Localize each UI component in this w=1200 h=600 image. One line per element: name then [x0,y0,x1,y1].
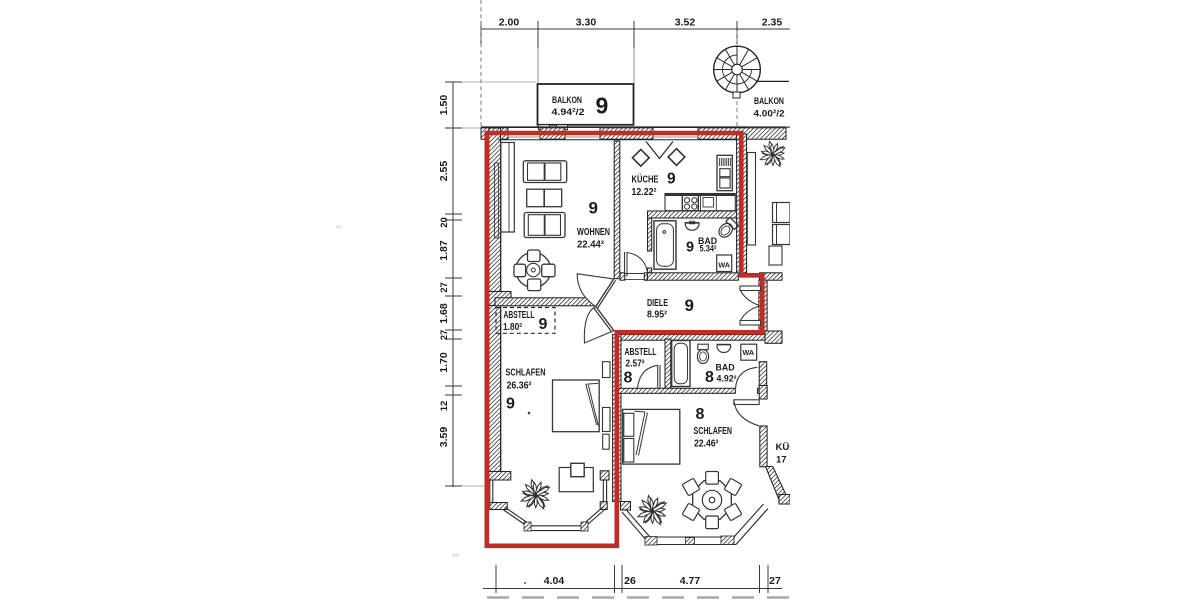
svg-text:20: 20 [439,217,450,228]
svg-text:9: 9 [506,396,515,413]
svg-text:ABSTELL: ABSTELL [625,347,657,358]
svg-text:1.68: 1.68 [438,303,450,324]
svg-text:27: 27 [439,282,450,293]
svg-text:26: 26 [624,575,636,587]
svg-text:9: 9 [596,93,609,119]
svg-text:1.50: 1.50 [438,95,450,116]
svg-text:8: 8 [696,406,705,423]
svg-text:BALKON: BALKON [552,95,582,106]
svg-text:KÜCHE: KÜCHE [632,173,659,186]
svg-text:27: 27 [439,330,450,341]
svg-text:ABSTELL: ABSTELL [504,310,535,321]
svg-text:2.57²: 2.57² [626,359,646,370]
svg-text:4.77: 4.77 [680,575,701,587]
svg-text:12.22²: 12.22² [632,186,657,198]
svg-text:BAD: BAD [716,363,735,373]
svg-text:WA: WA [718,261,730,270]
svg-text:9: 9 [539,316,548,333]
svg-text:9: 9 [589,199,598,218]
svg-text:2.00: 2.00 [499,17,520,29]
svg-text:BALKON: BALKON [754,96,784,107]
svg-text:26.36²: 26.36² [507,380,532,392]
svg-text:12: 12 [439,401,450,412]
svg-text:3.30: 3.30 [576,17,597,29]
svg-text:2.35: 2.35 [762,17,783,29]
svg-text:22.46²: 22.46² [694,438,719,450]
svg-text:WOHNEN: WOHNEN [577,226,610,238]
svg-text:8: 8 [705,369,714,386]
svg-text:9: 9 [685,296,694,315]
svg-text:1.70: 1.70 [438,352,450,373]
svg-text:4.94²/2: 4.94²/2 [552,107,585,118]
svg-text:2.55: 2.55 [438,161,450,182]
svg-text:1.87: 1.87 [438,240,450,261]
svg-text:DIELE: DIELE [647,297,668,309]
svg-text:8.95²: 8.95² [647,309,667,321]
svg-text:3.59: 3.59 [438,427,450,448]
svg-text:3.52: 3.52 [675,17,696,29]
svg-text:27: 27 [769,575,781,587]
svg-text:4.04: 4.04 [544,575,565,587]
svg-text:SCHLAFEN: SCHLAFEN [506,367,546,379]
svg-text:22.44²: 22.44² [577,239,604,251]
svg-text:SCHLAFEN: SCHLAFEN [694,425,733,437]
svg-text:9: 9 [667,171,676,188]
svg-text:4.00²/2: 4.00²/2 [754,109,785,120]
svg-text:9: 9 [686,240,694,256]
svg-text:1.80²: 1.80² [503,322,523,333]
svg-text:WA: WA [743,348,755,357]
svg-text:17: 17 [776,455,787,466]
svg-text:8: 8 [624,370,633,387]
svg-text:4.92²: 4.92² [717,374,737,384]
svg-text:5.34²: 5.34² [700,244,717,254]
